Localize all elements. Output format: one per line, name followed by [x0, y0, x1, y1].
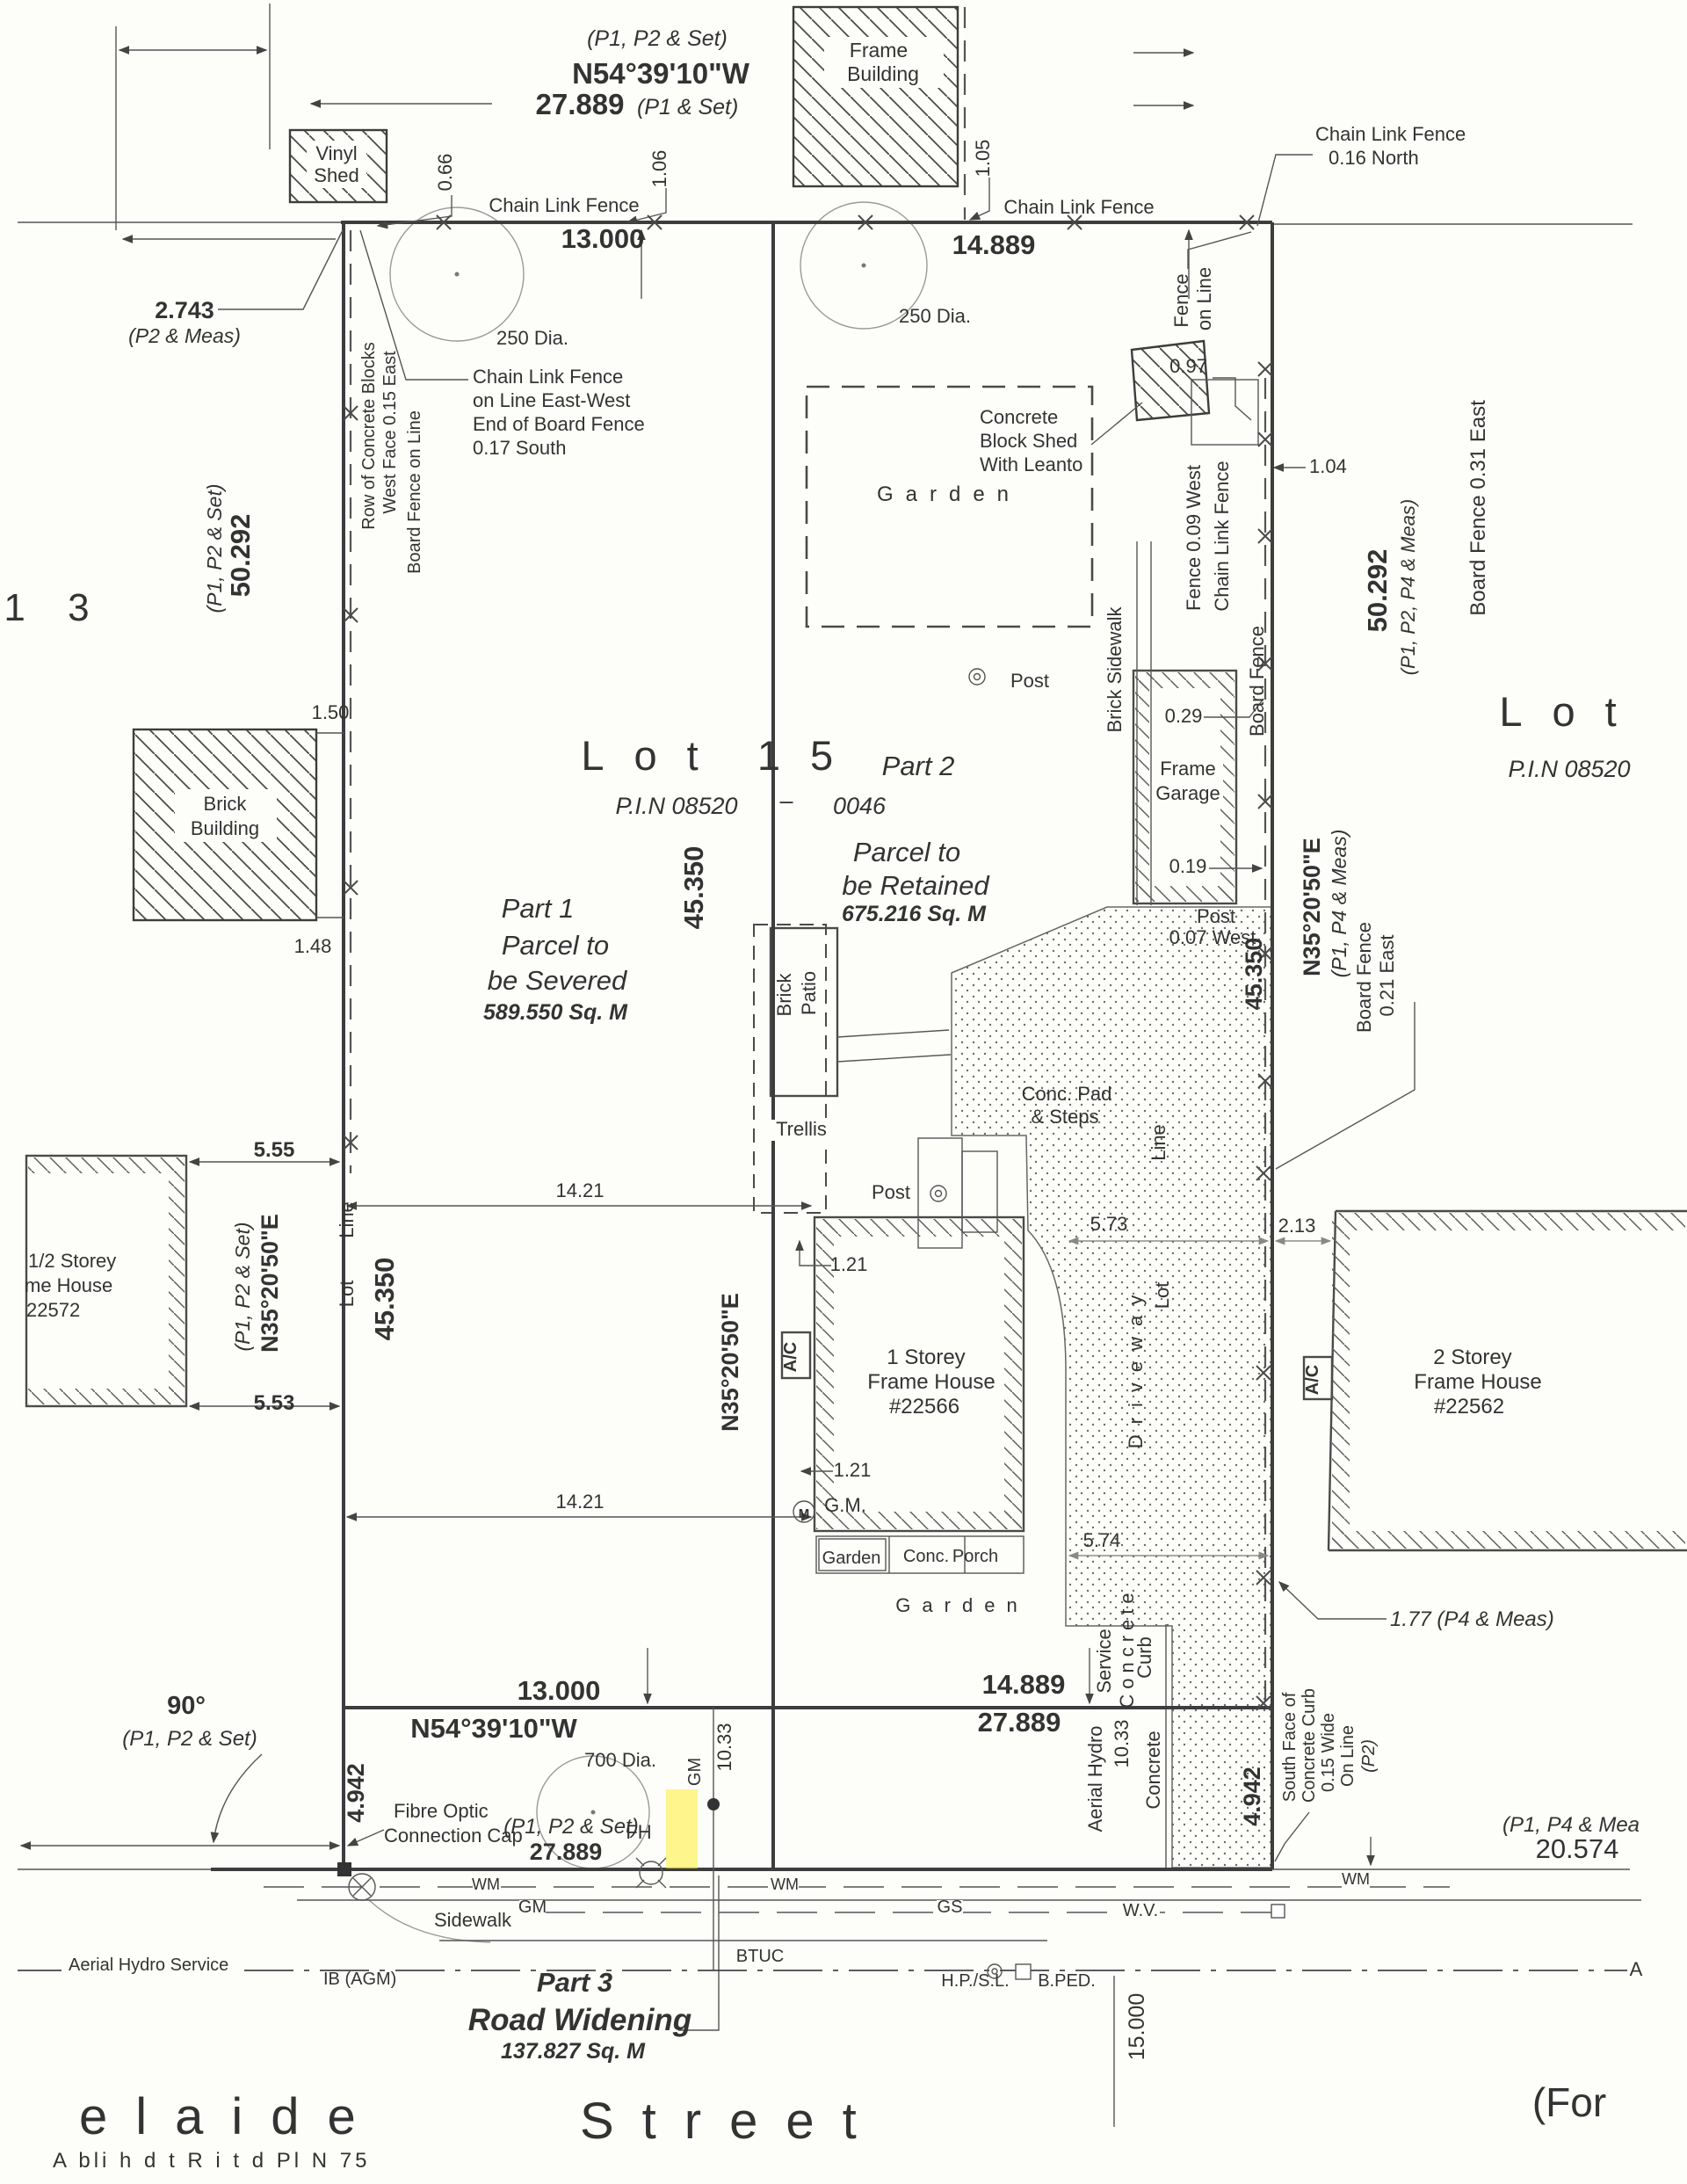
fire-hydrant-symbol	[636, 1858, 666, 1888]
label-fence-009: Fence 0.09 West	[1183, 465, 1205, 611]
label-dist-20574: 20.574	[1536, 1833, 1619, 1864]
label-southface-2: Concrete Curb	[1300, 1688, 1319, 1803]
label-gm-v: GM	[685, 1758, 705, 1786]
label-dim-2743-note: (P2 & Meas)	[128, 324, 241, 347]
label-lot-right: Lot	[1499, 688, 1646, 735]
label-part1-2: Parcel to	[502, 930, 609, 961]
label-bf-021-2: 0.21 East	[1376, 935, 1398, 1017]
label-garden-box: Garden	[822, 1549, 881, 1568]
label-dim-150: 1.50	[312, 701, 350, 723]
label-lotline-w-1: Lot	[336, 1281, 358, 1308]
label-gs: GS	[938, 1897, 963, 1917]
label-dist-13000-top: 13.000	[561, 223, 645, 254]
label-part1-1: Part 1	[502, 893, 575, 924]
labels-layer: (P1, P2 & Set)N54°39'10"W27.889(P1 & Set…	[4, 26, 1646, 2173]
label-garage-2: Garage	[1155, 782, 1220, 804]
label-dim-104: 1.04	[1309, 455, 1347, 477]
label-dim-105: 1.05	[972, 140, 994, 178]
label-bf-on-line: Board Fence on Line	[405, 410, 424, 574]
label-dim-555: 5.55	[254, 1138, 295, 1162]
label-lotline-e-2: Line	[1148, 1124, 1169, 1161]
label-clf-016-1: Chain Link Fence	[1315, 123, 1466, 145]
label-fence-on-line-r2: on Line	[1193, 267, 1215, 330]
label-frame-bldg-1: Frame	[850, 39, 908, 62]
label-ac-right: A/C	[1303, 1365, 1322, 1395]
label-dist-top: 27.889	[536, 88, 625, 120]
label-bearing-left: N35°20'50"E	[257, 1214, 283, 1353]
label-fibre-1: Fibre Optic	[394, 1800, 489, 1822]
label-dist-13000-b: 13.000	[518, 1675, 601, 1706]
label-house-left-2: me House	[25, 1274, 112, 1296]
patio-walk-lines	[837, 1030, 951, 1062]
label-curb: Curb	[1133, 1636, 1155, 1679]
label-southface-1: South Face of	[1280, 1692, 1300, 1802]
label-bearing-right-note: (P1, P4 & Meas)	[1328, 830, 1350, 978]
label-rowblocks-1: Row of Concrete Blocks	[359, 342, 379, 529]
label-garden-top: Garden	[877, 483, 1021, 506]
label-bearing-left-note: (P1, P2 & Set)	[231, 1222, 254, 1351]
label-street-1: elaide	[79, 2088, 384, 2145]
label-note-top: (P1, P2 & Set)	[587, 26, 728, 51]
label-dist-50292-r-note: (P1, P2, P4 & Meas)	[1397, 499, 1419, 676]
label-sidewalk: Sidewalk	[434, 1909, 512, 1931]
label-part2-title: Part 2	[882, 751, 955, 781]
label-southface-3: 0.15 Wide	[1319, 1713, 1338, 1792]
post-symbol-2	[930, 1186, 946, 1201]
label-brickpatio-2: Patio	[798, 971, 820, 1015]
label-dist-50292-w-note: (P1, P2 & Set)	[203, 483, 226, 613]
label-part1-4: 589.550 Sq. M	[483, 1000, 628, 1025]
label-dim-1421a: 14.21	[555, 1179, 604, 1201]
hydro-pole-dot	[707, 1798, 720, 1810]
label-dim-066: 0.66	[434, 154, 456, 192]
label-house1-3: #22566	[889, 1395, 959, 1419]
label-dist-14889-top: 14.889	[952, 229, 1036, 260]
label-lotline-w-2: Line	[336, 1201, 358, 1238]
label-dim-553: 5.53	[254, 1391, 295, 1415]
trellis-outline	[754, 925, 826, 1213]
label-wv: W.V.	[1123, 1901, 1158, 1920]
label-vinyl-shed-2: Shed	[314, 164, 358, 186]
label-southface-5: (P2)	[1359, 1739, 1379, 1773]
label-lot-center-num: 15	[757, 732, 863, 779]
label-conc-label: Conc.	[903, 1547, 949, 1566]
label-dim-213: 2.13	[1278, 1215, 1316, 1237]
label-tree-dia-2: 250 Dia.	[899, 305, 971, 327]
label-bped: B.PED.	[1038, 1971, 1096, 1991]
label-dim-15000: 15.000	[1125, 1993, 1149, 2060]
label-clf-note-2: on Line East-West	[473, 389, 630, 411]
label-post-007-1: Post	[1197, 905, 1235, 927]
label-street-2: Street	[580, 2093, 885, 2150]
label-gm-label: G.M.	[824, 1494, 866, 1516]
label-dist-45350-r: 45.350	[1241, 938, 1267, 1011]
label-setnote-b2: 27.889	[530, 1839, 603, 1865]
label-clf-top-right: Chain Link Fence	[1003, 196, 1154, 218]
label-part1-3: be Severed	[488, 965, 628, 996]
label-post-1: Post	[1010, 670, 1049, 692]
label-btuc: BTUC	[736, 1947, 784, 1966]
label-deg90: 90°	[167, 1692, 206, 1720]
label-parcel2-1: Parcel to	[853, 837, 960, 867]
label-part3-3: 137.827 Sq. M	[501, 2039, 646, 2064]
label-garden-low: Garden	[895, 1594, 1028, 1616]
label-bf-031: Board Fence 0.31 East	[1466, 400, 1490, 616]
label-dim-573: 5.73	[1090, 1213, 1128, 1235]
survey-plan-sheet: (P1, P2 & Set)N54°39'10"W27.889(P1 & Set…	[0, 0, 1687, 2184]
label-dist-45350-w: 45.350	[369, 1258, 400, 1341]
label-dist-50292-w: 50.292	[225, 514, 256, 598]
label-clf-vert: Chain Link Fence	[1211, 461, 1233, 611]
label-house2-2: Frame House	[1414, 1370, 1541, 1394]
label-rowblocks-2: West Face 0.15 East	[380, 351, 400, 514]
label-hpsl: H.P./S.L.	[941, 1971, 1009, 1991]
label-pin-center-dash: –	[779, 787, 793, 814]
label-parcel2-2: be Retained	[842, 870, 990, 901]
label-brickpatio-1: Brick	[773, 973, 795, 1017]
label-clf-top-left: Chain Link Fence	[489, 194, 639, 216]
label-bearing-c: N35°20'50"E	[717, 1293, 743, 1432]
label-setnote-b1: (P1, P2 & Set)	[503, 1815, 638, 1839]
label-tree-700: 700 Dia.	[584, 1749, 656, 1771]
label-dim-148: 1.48	[294, 935, 332, 957]
label-southface-4: On Line	[1338, 1725, 1358, 1787]
tree-250-1	[390, 207, 524, 341]
label-pin-center-2: 0046	[833, 793, 887, 819]
label-brick-sidewalk: Brick Sidewalk	[1104, 606, 1126, 732]
label-dist-top-note: (P1 & Set)	[637, 95, 738, 120]
label-pin-center-1: P.I.N 08520	[615, 793, 737, 819]
label-house-left-1: 1/2 Storey	[28, 1250, 116, 1272]
label-fence-on-line-r1: Fence	[1170, 273, 1192, 327]
water-valve-symbol	[1271, 1905, 1285, 1918]
label-fibre-2: Connection Cap	[384, 1825, 523, 1847]
label-dim-029: 0.29	[1165, 705, 1203, 727]
label-trellis: Trellis	[776, 1118, 827, 1140]
label-shed-note-3: With Leanto	[980, 453, 1082, 475]
street-utility-lines	[18, 1887, 1643, 1970]
label-dim-1421b: 14.21	[555, 1491, 604, 1513]
label-dim-1033r: 10.33	[1111, 1719, 1133, 1767]
label-ahs: Aerial Hydro Service	[69, 1955, 228, 1975]
label-bf-021-1: Board Fence	[1353, 922, 1375, 1033]
label-for-note: (For	[1532, 2079, 1606, 2125]
label-lot-center: Lot	[581, 732, 728, 779]
frame-building	[793, 7, 958, 186]
label-clf-016-2: 0.16 North	[1329, 147, 1419, 169]
label-brick-bldg-1: Brick	[204, 793, 248, 815]
label-pin-right: P.I.N 08520	[1508, 756, 1630, 782]
label-wm-1: WM	[472, 1876, 500, 1893]
label-dim-019: 0.19	[1169, 855, 1207, 877]
label-post-2: Post	[872, 1181, 910, 1203]
label-concrete-v: Concrete	[1142, 1731, 1164, 1809]
label-bearing-right: N35°20'50"E	[1299, 838, 1325, 976]
label-wm-2: WM	[771, 1876, 799, 1893]
label-ac-left: A/C	[781, 1342, 800, 1372]
label-dim-4942w: 4.942	[343, 1763, 369, 1823]
label-part3-1: Part 3	[537, 1967, 612, 1998]
label-board-fence-v: Board Fence	[1246, 626, 1268, 736]
label-faint-note: A bli h d t R i t d Pl N 75	[53, 2149, 370, 2173]
label-clf-note-1: Chain Link Fence	[473, 366, 623, 388]
label-dim-121a: 1.21	[830, 1253, 868, 1275]
label-dim-097: 0.97	[1169, 355, 1207, 377]
label-dim-1033l: 10.33	[713, 1723, 735, 1771]
label-bearing-bottom: N54°39'10"W	[410, 1713, 577, 1744]
label-aerial-hydro: Aerial Hydro	[1084, 1725, 1106, 1832]
label-lot13: 1 3	[4, 586, 105, 629]
label-dist-14889-b: 14.889	[982, 1669, 1066, 1700]
label-concpad-2: & Steps	[1031, 1106, 1098, 1128]
label-house2-3: #22562	[1434, 1395, 1504, 1419]
label-dim-4942e: 4.942	[1239, 1767, 1265, 1826]
label-a-label: A	[1630, 1958, 1643, 1980]
label-gm-m: M	[799, 1506, 810, 1521]
post-symbol-1	[969, 669, 985, 685]
label-tree-dia-1: 250 Dia.	[496, 327, 568, 349]
iron-bar-marker	[337, 1862, 351, 1876]
label-lotline-e-1: Lot	[1151, 1282, 1173, 1310]
label-garage-1: Frame	[1160, 758, 1216, 780]
label-house1-1: 1 Storey	[887, 1346, 965, 1369]
label-dist-50292-r: 50.292	[1362, 549, 1393, 633]
label-clf-note-3: End of Board Fence	[473, 413, 645, 435]
label-gm-b: GM	[518, 1897, 547, 1917]
label-bearing-top: N54°39'10"W	[572, 57, 750, 90]
label-dim-2743: 2.743	[155, 297, 214, 323]
label-shed-note-2: Block Shed	[980, 430, 1077, 452]
label-concpad-1: Conc. Pad	[1022, 1083, 1112, 1105]
label-part3-2: Road Widening	[468, 2003, 691, 2037]
label-brick-bldg-2: Building	[191, 817, 259, 839]
label-deg90-note: (P1, P2 & Set)	[122, 1727, 257, 1751]
label-wm-3: WM	[1342, 1870, 1370, 1888]
label-dim-121b: 1.21	[834, 1459, 872, 1481]
label-dim-177: 1.77 (P4 & Meas)	[1390, 1607, 1554, 1631]
label-driveway: Driveway	[1125, 1285, 1147, 1448]
label-dist-27889-b: 27.889	[978, 1707, 1061, 1738]
label-parcel2-3: 675.216 Sq. M	[842, 902, 987, 926]
label-house-left-3: 22572	[26, 1299, 80, 1321]
label-vinyl-shed-1: Vinyl	[315, 142, 357, 164]
label-dist-45350-c: 45.350	[678, 846, 709, 930]
label-clf-note-4: 0.17 South	[473, 437, 566, 459]
label-house1-2: Frame House	[867, 1370, 995, 1394]
label-house2-1: 2 Storey	[1433, 1346, 1511, 1369]
label-frame-bldg-2: Building	[847, 62, 919, 85]
plan-drawing: (P1, P2 & Set)N54°39'10"W27.889(P1 & Set…	[0, 0, 1687, 2184]
label-dim-574: 5.74	[1083, 1529, 1121, 1551]
label-ib-agm: IB (AGM)	[323, 1970, 396, 1989]
label-porch: Porch	[952, 1547, 998, 1566]
highlight-mark	[666, 1789, 698, 1868]
label-service: Service	[1093, 1629, 1115, 1693]
label-dim-106: 1.06	[648, 150, 670, 188]
label-shed-note-1: Concrete	[980, 406, 1058, 428]
